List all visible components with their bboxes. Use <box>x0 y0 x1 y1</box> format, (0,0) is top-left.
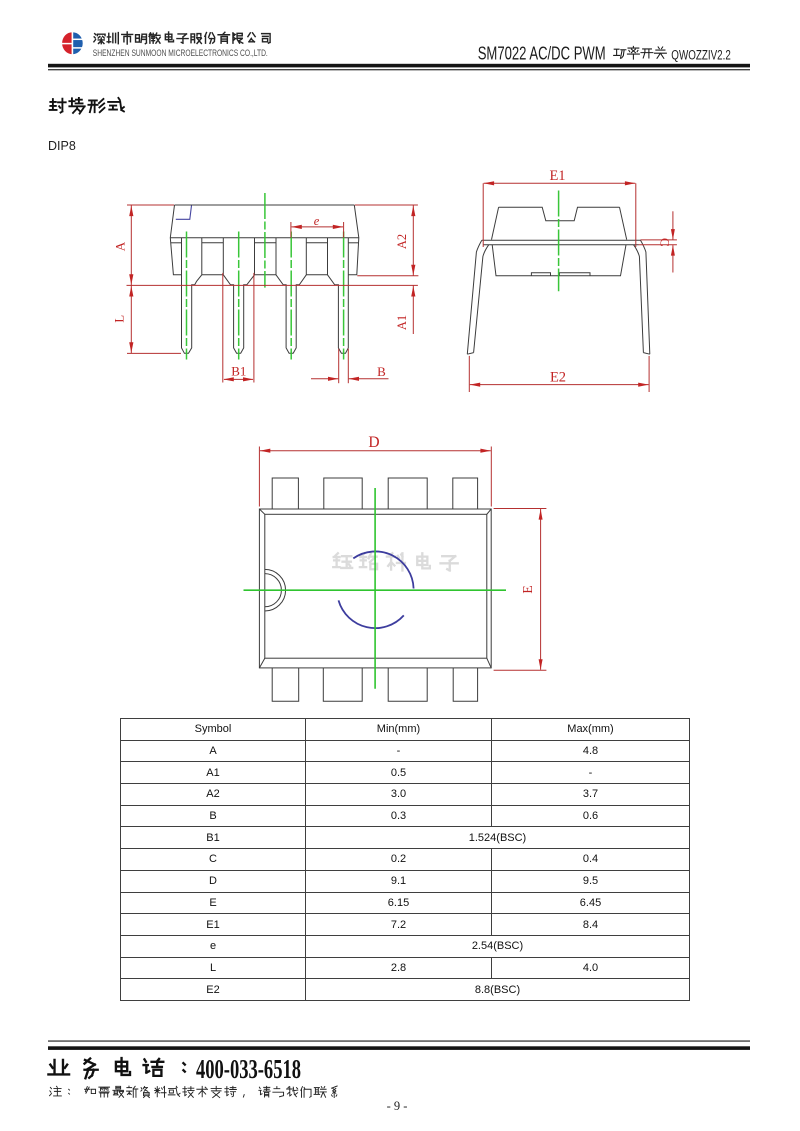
svg-text:A: A <box>113 241 128 251</box>
svg-text:QWOZZIV2.2: QWOZZIV2.2 <box>671 48 731 63</box>
svg-text:E: E <box>520 585 535 593</box>
svg-text:L: L <box>112 315 127 323</box>
svg-text:A2: A2 <box>395 234 409 249</box>
svg-text:e: e <box>314 214 320 228</box>
svg-text:400-033-6518: 400-033-6518 <box>196 1054 301 1084</box>
svg-text:E2: E2 <box>550 370 566 386</box>
svg-text:SHENZHEN SUNMOON MICROELECTRON: SHENZHEN SUNMOON MICROELECTRONICS CO.,LT… <box>93 48 268 59</box>
svg-text:D: D <box>368 434 379 451</box>
svg-text:B: B <box>377 364 386 379</box>
svg-text:B1: B1 <box>231 364 246 379</box>
svg-text:C: C <box>657 238 672 247</box>
svg-text:A1: A1 <box>395 315 409 330</box>
svg-text:- 9 -: - 9 - <box>387 1099 408 1113</box>
svg-text:E1: E1 <box>549 168 565 184</box>
svg-text:SM7022 AC/DC PWM: SM7022 AC/DC PWM <box>478 43 606 64</box>
